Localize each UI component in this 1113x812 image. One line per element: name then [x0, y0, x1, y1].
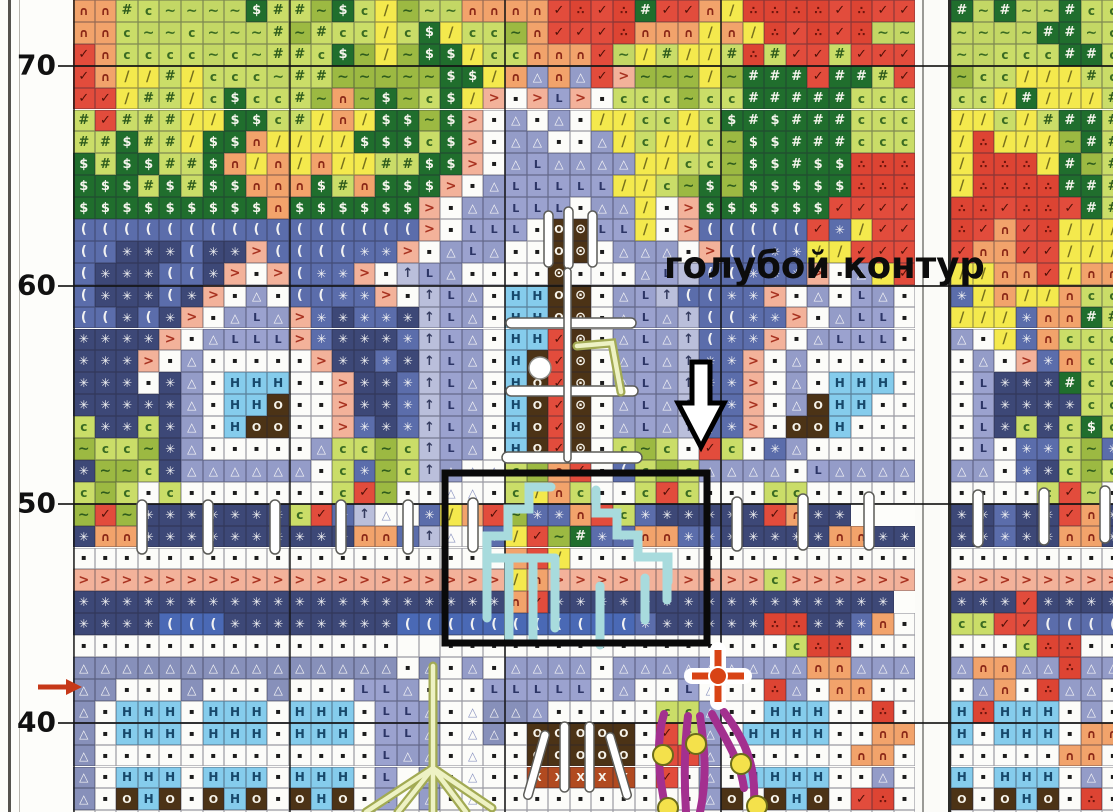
stitch-cell: ✳	[872, 591, 894, 613]
stitch-cell: H	[505, 416, 527, 438]
stitch-cell: ∼	[678, 66, 700, 88]
stitch-cell: △	[73, 723, 95, 745]
stitch-cell: /	[1059, 263, 1081, 285]
stitch-cell: ▪	[462, 635, 484, 657]
stitch-cell: H	[951, 723, 973, 745]
stitch-cell: c	[635, 88, 657, 110]
stitch-cell: ▪	[656, 548, 678, 570]
stitch-cell: X	[548, 767, 570, 789]
stitch-cell: /	[1037, 153, 1059, 175]
stitch-cell: c	[872, 110, 894, 132]
stitch-cell: (	[699, 307, 721, 329]
stitch-cell: c	[656, 175, 678, 197]
stitch-cell: ⊙	[548, 263, 570, 285]
stitch-cell: ∼	[116, 460, 138, 482]
stitch-cell: ▪	[224, 350, 246, 372]
stitch-cell: ✳	[591, 591, 613, 613]
stitch-cell: (	[311, 241, 333, 263]
stitch-cell: ▪	[203, 394, 225, 416]
stitch-cell: L	[440, 438, 462, 460]
stitch-cell: ▪	[181, 635, 203, 657]
stitch-cell: ↑	[419, 307, 441, 329]
stitch-cell: $	[332, 44, 354, 66]
stitch-cell: ✳	[829, 613, 851, 635]
stitch-cell: △	[419, 723, 441, 745]
stitch-cell: ✓	[73, 44, 95, 66]
stitch-cell: c	[267, 110, 289, 132]
stitch-cell: △	[440, 482, 462, 504]
stitch-cell: $	[807, 197, 829, 219]
stitch-cell: ∴	[872, 175, 894, 197]
stitch-cell: △	[613, 153, 635, 175]
stitch-cell: ∩	[1059, 285, 1081, 307]
stitch-cell: ▪	[462, 548, 484, 570]
stitch-cell: ✳	[1016, 329, 1038, 351]
stitch-cell: ∴	[1037, 679, 1059, 701]
stitch-cell: △	[332, 657, 354, 679]
stitch-cell: H	[289, 723, 311, 745]
stitch-cell: △	[656, 657, 678, 679]
stitch-cell: c	[397, 438, 419, 460]
stitch-cell: L	[973, 394, 995, 416]
stitch-cell: ▪	[894, 679, 916, 701]
stitch-cell: H	[829, 394, 851, 416]
stitch-cell: ▪	[1081, 548, 1103, 570]
stitch-cell: $	[289, 197, 311, 219]
stitch-cell: △	[181, 657, 203, 679]
stitch-cell: H	[786, 723, 808, 745]
stitch-cell: #	[181, 153, 203, 175]
stitch-cell: >	[332, 416, 354, 438]
stitch-cell: ▪	[440, 788, 462, 810]
stitch-cell: ▪	[894, 438, 916, 460]
stitch-cell: △	[570, 657, 592, 679]
stitch-cell: c	[354, 438, 376, 460]
stitch-cell: L	[246, 329, 268, 351]
stitch-cell: ✳	[95, 350, 117, 372]
stitch-cell: c	[872, 88, 894, 110]
stitch-cell: ▪	[894, 613, 916, 635]
stitch-cell: /	[973, 307, 995, 329]
stitch-cell: ▪	[807, 372, 829, 394]
stitch-cell: #	[1081, 66, 1103, 88]
stitch-cell: ▪	[483, 153, 505, 175]
stitch-cell: ∼	[973, 44, 995, 66]
stitch-cell: ∴	[1037, 219, 1059, 241]
stitch-cell: ∩	[548, 66, 570, 88]
stitch-cell: ▪	[95, 745, 117, 767]
stitch-cell: ▪	[851, 548, 873, 570]
stitch-cell: >	[224, 569, 246, 591]
stitch-cell: #	[375, 153, 397, 175]
stitch-cell: △	[440, 460, 462, 482]
stitch-cell: #	[872, 66, 894, 88]
stitch-cell: ▪	[397, 788, 419, 810]
stitch-cell: ✳	[181, 526, 203, 548]
stitch-cell: c	[332, 22, 354, 44]
stitch-cell: ✓	[656, 723, 678, 745]
stitch-cell: ∼	[246, 22, 268, 44]
stitch-cell: #	[1059, 22, 1081, 44]
stitch-cell: ✳	[1081, 591, 1103, 613]
stitch-cell: ▪	[375, 263, 397, 285]
stitch-cell: △	[375, 657, 397, 679]
stitch-cell: O	[570, 745, 592, 767]
stitch-cell: ✳	[951, 285, 973, 307]
stitch-cell: ∴	[1037, 197, 1059, 219]
stitch-cell: c	[246, 88, 268, 110]
stitch-cell: L	[505, 219, 527, 241]
stitch-cell: △	[1081, 679, 1103, 701]
stitch-cell: >	[289, 329, 311, 351]
stitch-cell: ▪	[591, 460, 613, 482]
stitch-cell: c	[203, 88, 225, 110]
stitch-cell: ✳	[73, 591, 95, 613]
stitch-cell: H	[786, 701, 808, 723]
stitch-cell: ▪	[311, 482, 333, 504]
stitch-cell: ∼	[1081, 460, 1103, 482]
stitch-cell: ▪	[181, 548, 203, 570]
stitch-cell: ∼	[894, 22, 916, 44]
stitch-cell: ✳	[159, 591, 181, 613]
stitch-cell: ✳	[994, 591, 1016, 613]
stitch-cell: ∼	[138, 22, 160, 44]
stitch-cell: c	[138, 416, 160, 438]
stitch-cell: △	[483, 197, 505, 219]
stitch-cell: #	[721, 44, 743, 66]
stitch-cell: ▪	[483, 307, 505, 329]
stitch-cell: ▪	[203, 482, 225, 504]
stitch-cell: >	[419, 219, 441, 241]
stitch-cell: ✓	[699, 438, 721, 460]
stitch-cell: c	[505, 460, 527, 482]
stitch-cell: ▪	[203, 438, 225, 460]
stitch-cell: ✳	[570, 591, 592, 613]
stitch-cell: c	[973, 88, 995, 110]
stitch-cell: >	[332, 372, 354, 394]
stitch-cell: ↑	[678, 329, 700, 351]
stitch-cell: ▪	[289, 548, 311, 570]
stitch-cell: △	[872, 460, 894, 482]
stitch-cell: ∩	[1081, 723, 1103, 745]
stitch-cell: △	[505, 131, 527, 153]
stitch-cell: ▪	[440, 723, 462, 745]
stitch-cell: ▪	[354, 788, 376, 810]
stitch-cell: ✳	[548, 504, 570, 526]
stitch-cell: ▪	[354, 723, 376, 745]
stitch-cell: ↑	[419, 350, 441, 372]
stitch-cell: ✓	[894, 197, 916, 219]
stitch-cell: ∴	[851, 175, 873, 197]
stitch-cell: ∩	[1059, 526, 1081, 548]
stitch-cell: L	[440, 285, 462, 307]
stitch-cell: H	[203, 767, 225, 789]
stitch-cell: △	[462, 350, 484, 372]
stitch-cell: ∴	[973, 701, 995, 723]
stitch-cell: ▪	[851, 635, 873, 657]
stitch-cell: /	[440, 22, 462, 44]
stitch-cell: /	[1081, 219, 1103, 241]
stitch-cell: c	[786, 635, 808, 657]
stitch-cell: ∩	[656, 526, 678, 548]
stitch-cell: ✳	[973, 526, 995, 548]
stitch-cell: △	[289, 460, 311, 482]
stitch-cell: △	[829, 307, 851, 329]
stitch-cell: ∩	[994, 263, 1016, 285]
stitch-cell: $	[354, 197, 376, 219]
stitch-cell: ▪	[951, 679, 973, 701]
stitch-cell: ▪	[1059, 767, 1081, 789]
stitch-cell: ▪	[656, 679, 678, 701]
stitch-cell: ∴	[786, 0, 808, 22]
stitch-cell: ✳	[786, 526, 808, 548]
stitch-cell: ✳	[116, 241, 138, 263]
stitch-cell: ✳	[1037, 350, 1059, 372]
stitch-cell: ▪	[743, 745, 765, 767]
stitch-cell: ✳	[375, 307, 397, 329]
stitch-cell: H	[224, 788, 246, 810]
stitch-cell: ✳	[1037, 416, 1059, 438]
stitch-cell: /	[354, 110, 376, 132]
stitch-cell: ▪	[354, 767, 376, 789]
stitch-cell: △	[267, 460, 289, 482]
stitch-cell: #	[1059, 372, 1081, 394]
stitch-cell: ⊙	[570, 394, 592, 416]
stitch-cell: ✳	[354, 329, 376, 351]
stitch-cell: H	[1016, 701, 1038, 723]
stitch-cell: $	[786, 175, 808, 197]
stitch-cell: c	[635, 110, 657, 132]
stitch-cell: △	[548, 657, 570, 679]
stitch-cell: ▪	[851, 416, 873, 438]
stitch-cell: △	[419, 701, 441, 723]
stitch-cell: #	[994, 0, 1016, 22]
stitch-cell: >	[894, 569, 916, 591]
stitch-cell: ∴	[973, 153, 995, 175]
stitch-cell: H	[951, 767, 973, 789]
stitch-cell: L	[440, 372, 462, 394]
stitch-cell: ✓	[95, 504, 117, 526]
stitch-cell: #	[743, 66, 765, 88]
stitch-cell: ∴	[807, 0, 829, 22]
stitch-cell: H	[505, 350, 527, 372]
stitch-cell: ✳	[375, 591, 397, 613]
stitch-cell: △	[419, 657, 441, 679]
stitch-cell: #	[1102, 307, 1113, 329]
stitch-cell: ▪	[224, 745, 246, 767]
stitch-cell: (	[73, 263, 95, 285]
stitch-cell: >	[289, 307, 311, 329]
stitch-cell: /	[699, 22, 721, 44]
stitch-cell: ✳	[397, 307, 419, 329]
stitch-cell: /	[951, 153, 973, 175]
stitch-cell: /	[635, 44, 657, 66]
stitch-cell: ▪	[807, 548, 829, 570]
stitch-cell: ✳	[73, 460, 95, 482]
stitch-cell: X	[570, 767, 592, 789]
stitch-cell: △	[894, 657, 916, 679]
stitch-cell: c	[332, 438, 354, 460]
stitch-cell: △	[743, 460, 765, 482]
stitch-cell: c	[851, 88, 873, 110]
stitch-cell: ∴	[872, 788, 894, 810]
stitch-cell: ✳	[1037, 460, 1059, 482]
stitch-cell: ∩	[807, 657, 829, 679]
stitch-cell: △	[73, 701, 95, 723]
stitch-cell: O	[527, 394, 549, 416]
stitch-cell: △	[851, 460, 873, 482]
stitch-cell: ✓	[994, 197, 1016, 219]
stitch-cell: c	[635, 460, 657, 482]
row-label-50: 50	[10, 487, 56, 520]
stitch-cell: ▪	[483, 657, 505, 679]
stitch-cell: △	[181, 394, 203, 416]
stitch-cell: △	[699, 701, 721, 723]
stitch-cell: ∩	[527, 22, 549, 44]
stitch-cell: H	[224, 723, 246, 745]
stitch-cell: ▪	[829, 745, 851, 767]
stitch-cell: H	[332, 701, 354, 723]
stitch-cell: O	[548, 745, 570, 767]
stitch-cell: /	[951, 110, 973, 132]
stitch-cell: ∴	[764, 613, 786, 635]
stitch-cell: △	[462, 701, 484, 723]
stitch-cell: c	[1102, 460, 1113, 482]
stitch-cell: ✳	[289, 591, 311, 613]
stitch-cell: ▪	[807, 745, 829, 767]
stitch-cell: ✳	[678, 526, 700, 548]
stitch-cell: ▪	[419, 679, 441, 701]
stitch-cell: ▪	[505, 788, 527, 810]
stitch-cell: ▪	[419, 241, 441, 263]
stitch-cell: ∴	[951, 197, 973, 219]
stitch-cell: ∩	[289, 175, 311, 197]
stitch-cell: >	[95, 569, 117, 591]
stitch-cell: ▪	[951, 438, 973, 460]
stitch-cell: >	[829, 569, 851, 591]
stitch-cell: $	[807, 175, 829, 197]
stitch-cell: ✳	[159, 416, 181, 438]
stitch-cell: ∩	[548, 482, 570, 504]
gridline-v20	[504, 0, 506, 812]
stitch-cell: /	[138, 66, 160, 88]
stitch-cell: △	[354, 657, 376, 679]
stitch-cell: ∩	[116, 526, 138, 548]
stitch-cell: ✳	[354, 285, 376, 307]
stitch-cell: $	[73, 175, 95, 197]
stitch-cell: ✳	[73, 372, 95, 394]
stitch-cell: △	[613, 394, 635, 416]
stitch-cell: (	[375, 219, 397, 241]
stitch-cell: ∩	[894, 723, 916, 745]
stitch-cell: ▪	[973, 745, 995, 767]
stitch-cell: $	[224, 197, 246, 219]
stitch-cell: ✳	[829, 219, 851, 241]
stitch-cell: ▪	[483, 635, 505, 657]
stitch-cell: ▪	[829, 701, 851, 723]
stitch-cell: L	[246, 307, 268, 329]
stitch-cell: ∼	[203, 44, 225, 66]
stitch-cell: H	[829, 416, 851, 438]
stitch-cell: c	[699, 131, 721, 153]
stitch-cell: △	[613, 285, 635, 307]
stitch-cell: $	[138, 197, 160, 219]
stitch-cell: ▪	[548, 701, 570, 723]
stitch-cell: #	[951, 0, 973, 22]
stitch-cell: /	[375, 22, 397, 44]
stitch-cell: ▪	[354, 701, 376, 723]
stitch-cell: ▪	[829, 767, 851, 789]
stitch-cell: ∩	[851, 745, 873, 767]
stitch-cell: c	[116, 44, 138, 66]
stitch-cell: ∼	[1081, 153, 1103, 175]
stitch-cell: ▪	[203, 416, 225, 438]
stitch-cell: (	[332, 219, 354, 241]
stitch-cell: ✓	[656, 0, 678, 22]
stitch-cell: >	[354, 569, 376, 591]
stitch-cell: ∴	[894, 153, 916, 175]
stitch-cell: H	[994, 767, 1016, 789]
stitch-cell: ▪	[678, 548, 700, 570]
stitch-cell: >	[419, 569, 441, 591]
stitch-cell: (	[699, 416, 721, 438]
stitch-cell: O	[613, 723, 635, 745]
stitch-cell: ✳	[721, 504, 743, 526]
stitch-cell: >	[1016, 350, 1038, 372]
stitch-cell: ∩	[332, 88, 354, 110]
stitch-cell: △	[462, 197, 484, 219]
stitch-cell: ▪	[635, 745, 657, 767]
stitch-cell: ∴	[1037, 175, 1059, 197]
stitch-cell: H	[116, 723, 138, 745]
stitch-cell: ▪	[440, 701, 462, 723]
stitch-cell: △	[181, 460, 203, 482]
stitch-cell: >	[570, 88, 592, 110]
stitch-cell: /	[246, 153, 268, 175]
stitch-cell: (	[138, 219, 160, 241]
stitch-cell: ▪	[483, 131, 505, 153]
stitch-cell: ✳	[246, 504, 268, 526]
stitch-cell: ✓	[894, 66, 916, 88]
stitch-cell: ∩	[994, 657, 1016, 679]
stitch-cell: $	[786, 197, 808, 219]
stitch-cell: H	[138, 767, 160, 789]
stitch-cell: ✳	[95, 285, 117, 307]
stitch-cell: H	[246, 767, 268, 789]
stitch-cell: ▪	[951, 745, 973, 767]
stitch-cell: $	[764, 197, 786, 219]
stitch-cell: ▪	[721, 745, 743, 767]
stitch-cell: ▪	[894, 307, 916, 329]
stitch-cell: H	[224, 701, 246, 723]
stitch-cell: c	[116, 22, 138, 44]
stitch-cell: ▪	[591, 285, 613, 307]
stitch-cell: ▪	[483, 394, 505, 416]
stitch-cell: ✳	[1102, 591, 1113, 613]
stitch-cell: ⊙	[570, 372, 592, 394]
stitch-cell: >	[570, 569, 592, 591]
stitch-cell: ▪	[973, 723, 995, 745]
stitch-cell: △	[181, 350, 203, 372]
stitch-cell: O	[764, 788, 786, 810]
stitch-cell: ▪	[973, 635, 995, 657]
stitch-cell: ▪	[289, 635, 311, 657]
stitch-cell: c	[851, 110, 873, 132]
stitch-cell: ▪	[224, 285, 246, 307]
stitch-cell: ▪	[591, 482, 613, 504]
stitch-cell: ▪	[203, 745, 225, 767]
stitch-cell: ▪	[1102, 679, 1113, 701]
